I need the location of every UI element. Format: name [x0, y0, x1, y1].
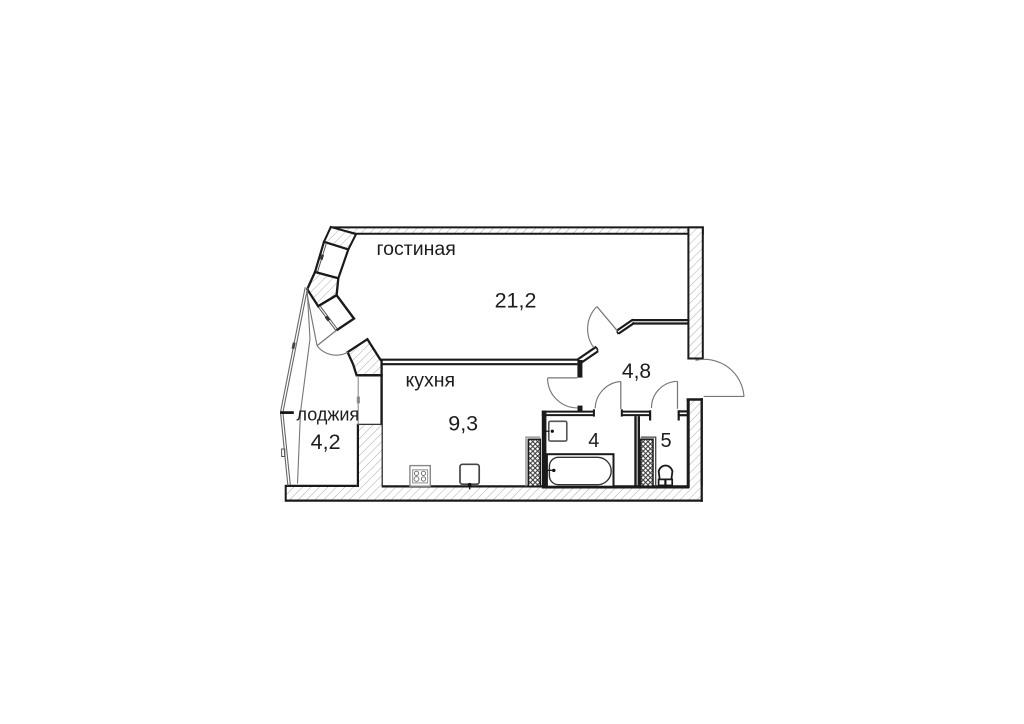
svg-text:гостиная: гостиная — [377, 238, 456, 260]
svg-text:5: 5 — [660, 430, 671, 452]
svg-text:кухня: кухня — [406, 370, 456, 392]
svg-text:лоджия: лоджия — [297, 404, 360, 424]
svg-text:9,3: 9,3 — [448, 412, 478, 436]
svg-text:21,2: 21,2 — [495, 289, 537, 313]
svg-text:4,2: 4,2 — [311, 430, 341, 454]
svg-text:4: 4 — [588, 430, 599, 452]
svg-text:4,8: 4,8 — [622, 360, 651, 383]
